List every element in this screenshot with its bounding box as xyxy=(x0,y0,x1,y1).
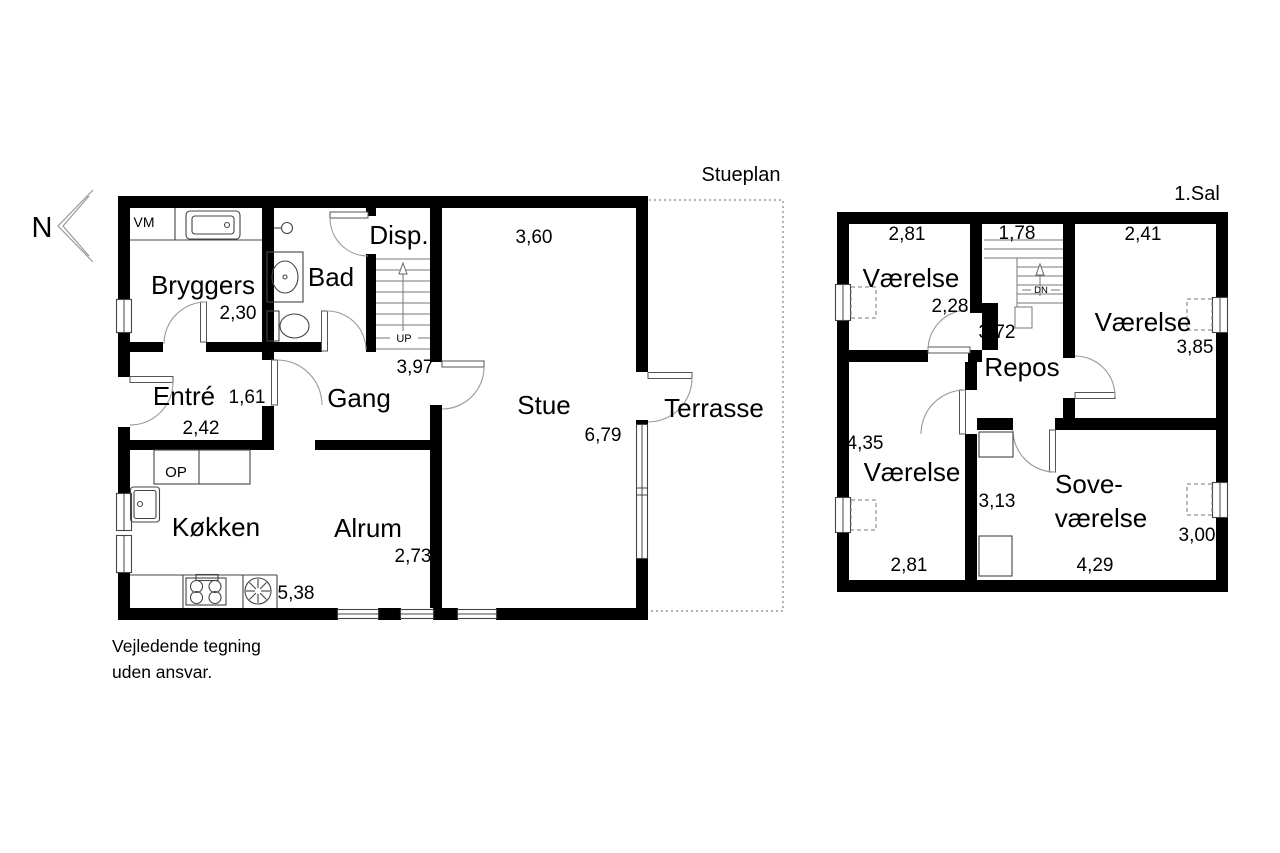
stairs-down-label: DN xyxy=(1034,285,1048,296)
dim-entre: 1,61 xyxy=(229,387,266,408)
door-symbols-first xyxy=(921,310,1115,472)
dim-vaerelse-ne-width: 2,41 xyxy=(1125,224,1162,245)
room-label-entre: Entré xyxy=(153,381,215,411)
room-label-sovevaerelse-2: værelse xyxy=(1055,503,1147,533)
room-label-vaerelse-ne: Værelse xyxy=(1095,307,1192,337)
dim-stue-width: 3,60 xyxy=(516,227,553,248)
room-label-bad: Bad xyxy=(308,262,354,292)
floor-plan-drawing: N xyxy=(0,0,1280,853)
north-label: N xyxy=(32,212,53,244)
floor-plan-page: N xyxy=(0,0,1280,853)
dim-entre-2: 2,42 xyxy=(183,418,220,439)
dim-alrum: 2,73 xyxy=(395,546,432,567)
room-label-disp: Disp. xyxy=(369,220,428,250)
room-label-gang: Gang xyxy=(327,383,391,413)
dim-vaerelse-sw-depth: 4,35 xyxy=(847,433,884,454)
ground-floor-plan: UP xyxy=(117,164,784,620)
dim-vaerelse-sw-width: 2,81 xyxy=(891,555,928,576)
north-arrow-icon xyxy=(58,190,93,262)
room-label-stue: Stue xyxy=(517,390,571,420)
room-label-sovevaerelse-1: Sove- xyxy=(1055,469,1123,499)
shower-icon xyxy=(274,223,293,234)
room-label-alrum: Alrum xyxy=(334,513,402,543)
room-label-kokken: Køkken xyxy=(172,512,260,542)
laundry-sink-icon xyxy=(186,211,240,239)
extractor-fan-icon xyxy=(245,578,271,604)
room-label-vaerelse-nw: Værelse xyxy=(863,263,960,293)
dim-stair-hall-width: 1,78 xyxy=(999,223,1036,244)
dim-gang-depth: 3,97 xyxy=(397,357,434,378)
room-label-vaerelse-sw: Værelse xyxy=(864,457,961,487)
stairs-up-label: UP xyxy=(396,333,411,345)
dim-bryggers: 2,30 xyxy=(220,303,257,324)
first-floor-title: 1.Sal xyxy=(1174,183,1220,205)
room-label-bryggers: Bryggers xyxy=(151,270,255,300)
oven-cabinet-label: OP xyxy=(165,464,187,481)
kitchen-sink-icon xyxy=(131,487,160,522)
dim-repos-width: 3,72 xyxy=(979,322,1016,343)
dim-kokken: 5,38 xyxy=(278,583,315,604)
room-label-repos: Repos xyxy=(984,352,1059,382)
dim-vaerelse-nw-width: 2,81 xyxy=(889,224,926,245)
first-floor-plan: DN 1.Sal 2,81 1,78 2,41 Værelse 2,28 3,7… xyxy=(836,183,1229,592)
stove-icon xyxy=(186,575,226,606)
dim-sove-depth: 3,00 xyxy=(1179,525,1216,546)
room-label-terrasse: Terrasse xyxy=(664,393,764,423)
dim-sove-entry: 3,13 xyxy=(979,491,1016,512)
window-symbols-ground xyxy=(117,300,648,619)
dim-stue-depth: 6,79 xyxy=(585,425,622,446)
washing-machine-label: VM xyxy=(134,214,155,230)
dim-vaerelse-ne-depth: 3,85 xyxy=(1177,337,1214,358)
dim-vaerelse-nw-depth: 2,28 xyxy=(932,296,969,317)
disclaimer-line-2: uden ansvar. xyxy=(112,662,212,682)
ground-floor-title: Stueplan xyxy=(702,164,781,186)
dim-sove-width: 4,29 xyxy=(1077,555,1114,576)
disclaimer-line-1: Vejledende tegning xyxy=(112,636,261,656)
